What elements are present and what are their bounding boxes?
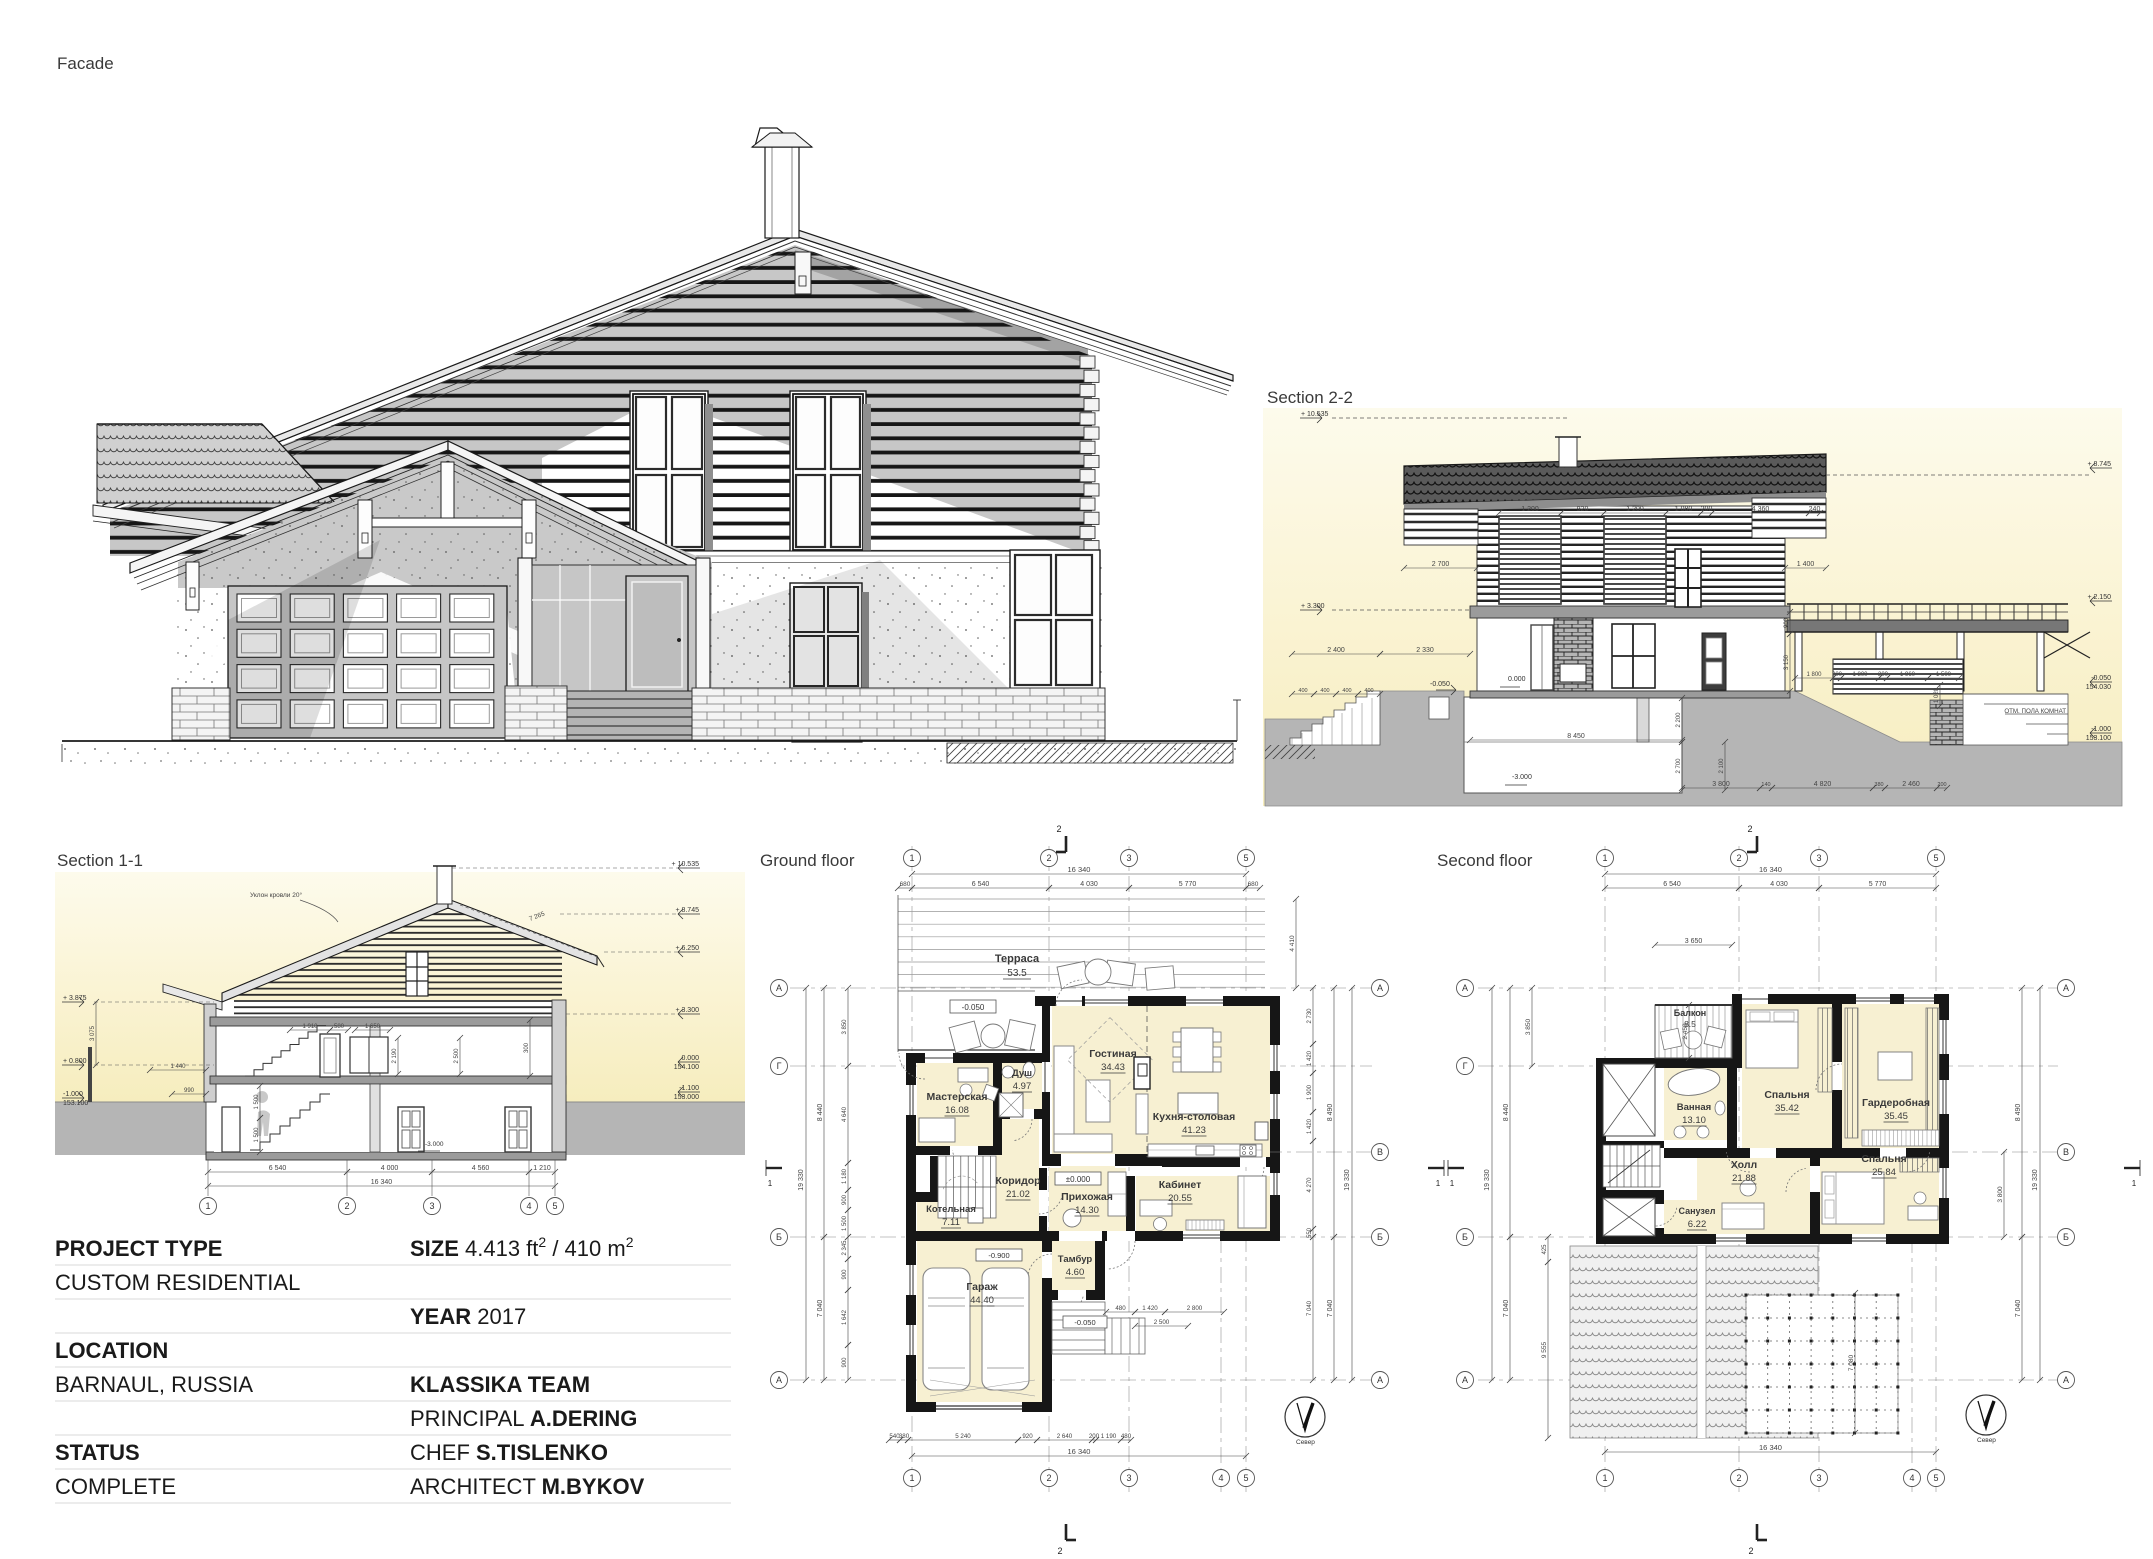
svg-text:Section 2-2: Section 2-2: [1267, 388, 1353, 407]
svg-text:1 440: 1 440: [170, 1064, 186, 1070]
svg-text:19 330: 19 330: [1344, 1169, 1351, 1191]
svg-text:STATUS: STATUS: [55, 1440, 140, 1465]
svg-text:1 190: 1 190: [1101, 1433, 1117, 1440]
svg-text:2: 2: [1736, 1473, 1741, 1483]
svg-text:А: А: [1377, 983, 1383, 993]
svg-text:200: 200: [1937, 782, 1946, 788]
svg-text:425: 425: [1542, 1244, 1548, 1255]
svg-text:480: 480: [1115, 1305, 1126, 1312]
svg-text:1 500: 1 500: [254, 1094, 260, 1110]
svg-text:4.60: 4.60: [1066, 1267, 1085, 1278]
svg-text:2 500: 2 500: [1154, 1319, 1170, 1326]
svg-text:900: 900: [842, 1194, 848, 1205]
svg-text:7.11: 7.11: [942, 1217, 960, 1228]
svg-text:-0.050: -0.050: [2091, 675, 2111, 682]
svg-text:CUSTOM RESIDENTIAL: CUSTOM RESIDENTIAL: [55, 1270, 300, 1295]
svg-text:Терраса: Терраса: [995, 953, 1040, 965]
svg-text:16 340: 16 340: [1068, 865, 1091, 874]
svg-text:3 650: 3 650: [1685, 938, 1703, 945]
svg-text:+ 10.535: + 10.535: [1301, 411, 1329, 418]
svg-text:Спальня: Спальня: [1861, 1153, 1906, 1165]
svg-text:580: 580: [334, 1024, 345, 1030]
svg-text:5 770: 5 770: [1869, 881, 1887, 888]
svg-text:А: А: [776, 1375, 782, 1385]
svg-text:3 150: 3 150: [1784, 654, 1790, 670]
svg-text:Уклон кровли 20°: Уклон кровли 20°: [250, 891, 302, 899]
svg-text:8 490: 8 490: [2015, 1104, 2022, 1122]
svg-text:4 820: 4 820: [1814, 781, 1832, 788]
svg-text:1: 1: [2132, 1179, 2137, 1188]
svg-text:Кухня-столовая: Кухня-столовая: [1153, 1111, 1235, 1123]
svg-text:25.84: 25.84: [1872, 1167, 1896, 1178]
svg-text:1 500: 1 500: [254, 1127, 260, 1143]
svg-text:34.43: 34.43: [1101, 1062, 1125, 1073]
svg-text:153.100: 153.100: [2086, 735, 2111, 742]
svg-text:1 500: 1 500: [1936, 672, 1952, 678]
svg-text:В: В: [1377, 1147, 1383, 1157]
svg-text:920: 920: [1577, 506, 1589, 513]
svg-text:2 345: 2 345: [842, 1240, 848, 1256]
svg-text:1: 1: [909, 853, 914, 863]
svg-text:8 440: 8 440: [1503, 1104, 1510, 1122]
svg-text:CHEF S.TISLENKO: CHEF S.TISLENKO: [410, 1440, 608, 1465]
svg-text:Б: Б: [1462, 1232, 1468, 1242]
svg-text:+ 6.250: + 6.250: [675, 945, 699, 952]
svg-text:Спальня: Спальня: [1764, 1089, 1809, 1101]
svg-text:2: 2: [1747, 824, 1752, 834]
svg-text:1 180: 1 180: [842, 1168, 848, 1184]
svg-text:7 040: 7 040: [1503, 1300, 1510, 1318]
svg-text:5: 5: [1243, 1473, 1248, 1483]
svg-text:2 700: 2 700: [1432, 561, 1450, 568]
svg-text:8 450: 8 450: [1567, 733, 1585, 740]
svg-text:Гараж: Гараж: [966, 1281, 998, 1293]
svg-text:3: 3: [1126, 1473, 1131, 1483]
svg-text:5: 5: [1243, 853, 1248, 863]
svg-text:200: 200: [1701, 506, 1713, 513]
svg-text:+ 2.150: + 2.150: [2087, 594, 2111, 601]
svg-text:19 330: 19 330: [2032, 1169, 2039, 1191]
svg-text:1: 1: [909, 1473, 914, 1483]
svg-text:Facade: Facade: [57, 54, 114, 73]
svg-text:А: А: [776, 983, 782, 993]
svg-text:4 410: 4 410: [1289, 935, 1296, 952]
svg-text:900: 900: [842, 1269, 848, 1280]
svg-text:900: 900: [1784, 617, 1790, 628]
svg-text:8 440: 8 440: [817, 1104, 824, 1122]
svg-text:В: В: [2063, 1147, 2069, 1157]
svg-text:1 960: 1 960: [1900, 672, 1916, 678]
svg-text:920: 920: [1022, 1433, 1033, 1440]
svg-text:1 900: 1 900: [1307, 1084, 1313, 1100]
svg-text:2: 2: [1046, 1473, 1051, 1483]
svg-text:200: 200: [1878, 672, 1889, 678]
svg-text:1: 1: [1450, 1179, 1455, 1188]
svg-text:21.88: 21.88: [1732, 1173, 1756, 1184]
svg-text:А: А: [2063, 1375, 2069, 1385]
svg-text:3: 3: [1816, 1473, 1821, 1483]
svg-text:2 500: 2 500: [454, 1048, 460, 1064]
svg-text:-0.050: -0.050: [1074, 1318, 1095, 1327]
svg-text:19 330: 19 330: [798, 1169, 805, 1191]
svg-text:3 850: 3 850: [842, 1019, 848, 1035]
svg-text:Санузел: Санузел: [1678, 1206, 1715, 1216]
svg-text:1 080: 1 080: [1675, 506, 1693, 513]
svg-text:2: 2: [1056, 824, 1061, 834]
svg-text:1 400: 1 400: [1797, 561, 1815, 568]
svg-text:1: 1: [1602, 1473, 1607, 1483]
svg-text:Б: Б: [776, 1232, 782, 1242]
svg-text:1: 1: [1602, 853, 1607, 863]
svg-text:2: 2: [1057, 1546, 1062, 1556]
svg-text:1 200: 1 200: [1626, 506, 1644, 513]
svg-text:1 420: 1 420: [1142, 1305, 1158, 1312]
svg-text:400: 400: [1320, 688, 1329, 694]
svg-text:7 040: 7 040: [817, 1300, 824, 1318]
svg-text:1 020: 1 020: [1934, 687, 1940, 703]
svg-text:Ground floor: Ground floor: [760, 851, 855, 870]
svg-text:6 540: 6 540: [1663, 881, 1681, 888]
svg-text:16 340: 16 340: [1068, 1447, 1091, 1456]
svg-text:Кабинет: Кабинет: [1159, 1179, 1202, 1191]
svg-text:20.55: 20.55: [1168, 1193, 1192, 1204]
svg-text:990: 990: [184, 1088, 195, 1094]
svg-text:1: 1: [1436, 1179, 1441, 1188]
svg-text:6 540: 6 540: [972, 881, 990, 888]
svg-text:3 800: 3 800: [1712, 781, 1730, 788]
svg-text:1 650: 1 650: [365, 1024, 381, 1030]
svg-text:-1.000: -1.000: [63, 1091, 83, 1098]
svg-text:480: 480: [1121, 1433, 1132, 1440]
svg-text:Коридор: Коридор: [995, 1175, 1040, 1187]
svg-text:Г: Г: [1463, 1061, 1468, 1071]
svg-text:19 330: 19 330: [1484, 1169, 1491, 1191]
svg-text:А: А: [1462, 1375, 1468, 1385]
svg-text:1 210: 1 210: [533, 1165, 551, 1172]
svg-text:+ 8.745: + 8.745: [2087, 461, 2111, 468]
svg-text:400: 400: [1342, 688, 1351, 694]
svg-text:PRINCIPAL A.DERING: PRINCIPAL A.DERING: [410, 1406, 637, 1431]
svg-text:1 200: 1 200: [1521, 506, 1539, 513]
svg-text:2: 2: [1046, 853, 1051, 863]
svg-text:Север: Север: [1296, 1439, 1315, 1446]
svg-text:1 910: 1 910: [302, 1024, 318, 1030]
svg-text:2: 2: [1736, 853, 1741, 863]
svg-text:+ 3.300: + 3.300: [1301, 603, 1325, 610]
svg-text:ОТМ. ПОЛА КОМНАТ: ОТМ. ПОЛА КОМНАТ: [2004, 708, 2066, 715]
svg-text:41.23: 41.23: [1182, 1125, 1206, 1136]
svg-text:4.97: 4.97: [1013, 1081, 1032, 1092]
svg-text:5: 5: [1933, 1473, 1938, 1483]
svg-text:+ 8.745: + 8.745: [675, 907, 699, 914]
svg-text:BARNAUL, RUSSIA: BARNAUL, RUSSIA: [55, 1372, 253, 1397]
svg-text:2 700: 2 700: [1676, 758, 1682, 774]
svg-text:SIZE 4.413 ft2 / 410 m2: SIZE 4.413 ft2 / 410 m2: [410, 1234, 634, 1261]
svg-text:200: 200: [1089, 1433, 1100, 1440]
svg-text:35.42: 35.42: [1775, 1103, 1799, 1114]
svg-text:4 560: 4 560: [472, 1165, 490, 1172]
svg-text:16 340: 16 340: [371, 1179, 393, 1186]
svg-text:5 240: 5 240: [955, 1433, 971, 1440]
svg-text:4 030: 4 030: [1770, 881, 1788, 888]
svg-text:16 340: 16 340: [1759, 1443, 1782, 1452]
svg-text:21.02: 21.02: [1006, 1189, 1030, 1200]
svg-text:KLASSIKA TEAM: KLASSIKA TEAM: [410, 1372, 590, 1397]
svg-text:3 075: 3 075: [90, 1025, 96, 1041]
svg-text:3: 3: [429, 1201, 434, 1211]
svg-text:COMPLETE: COMPLETE: [55, 1474, 176, 1499]
svg-text:1: 1: [205, 1201, 210, 1211]
svg-text:-0.050: -0.050: [1430, 681, 1450, 688]
svg-text:8 490: 8 490: [1327, 1104, 1334, 1122]
svg-text:5: 5: [1933, 853, 1938, 863]
svg-text:7 040: 7 040: [1327, 1300, 1334, 1318]
svg-text:5: 5: [552, 1201, 557, 1211]
svg-text:9 555: 9 555: [1541, 1341, 1548, 1358]
svg-text:240: 240: [1809, 506, 1821, 513]
svg-text:1 642: 1 642: [842, 1309, 848, 1325]
svg-text:ARCHITECT M.BYKOV: ARCHITECT M.BYKOV: [410, 1474, 645, 1499]
svg-text:YEAR 2017: YEAR 2017: [410, 1304, 526, 1329]
svg-text:2 330: 2 330: [1416, 647, 1434, 654]
svg-text:-3.000: -3.000: [425, 1141, 444, 1148]
svg-text:Тамбур: Тамбур: [1058, 1254, 1093, 1265]
svg-text:900: 900: [842, 1357, 848, 1368]
svg-text:PROJECT TYPE: PROJECT TYPE: [55, 1236, 222, 1261]
svg-text:Балкон: Балкон: [1674, 1008, 1707, 1018]
svg-text:-1.000: -1.000: [2091, 726, 2111, 733]
svg-text:Мастерская: Мастерская: [926, 1091, 987, 1103]
svg-text:А: А: [2063, 983, 2069, 993]
svg-text:16.08: 16.08: [945, 1105, 969, 1116]
svg-text:4 360: 4 360: [1752, 506, 1770, 513]
svg-text:4 000: 4 000: [381, 1165, 399, 1172]
svg-text:Ванная: Ванная: [1677, 1102, 1711, 1113]
svg-text:400: 400: [1364, 688, 1373, 694]
svg-text:35.45: 35.45: [1884, 1111, 1908, 1122]
svg-text:±0.000: ±0.000: [1066, 1175, 1091, 1184]
svg-text:16 340: 16 340: [1759, 865, 1782, 874]
svg-text:1 420: 1 420: [1307, 1050, 1313, 1066]
svg-text:0.000: 0.000: [681, 1055, 699, 1062]
svg-text:Гардеробная: Гардеробная: [1862, 1097, 1930, 1109]
svg-text:2 640: 2 640: [1057, 1433, 1073, 1440]
svg-text:Котельная: Котельная: [926, 1204, 976, 1215]
svg-text:4 270: 4 270: [1307, 1177, 1313, 1193]
svg-text:1 420: 1 420: [1307, 1118, 1313, 1134]
svg-text:2: 2: [1748, 1546, 1753, 1556]
svg-text:Б: Б: [2063, 1232, 2069, 1242]
svg-text:200: 200: [1832, 672, 1843, 678]
svg-text:1 500: 1 500: [842, 1215, 848, 1231]
svg-text:4 030: 4 030: [1080, 881, 1098, 888]
svg-text:140: 140: [1761, 782, 1770, 788]
svg-text:7 080: 7 080: [1848, 1354, 1855, 1371]
svg-text:-0.900: -0.900: [988, 1251, 1009, 1260]
svg-text:3 800: 3 800: [1997, 1186, 2004, 1203]
svg-text:2 190: 2 190: [392, 1048, 398, 1064]
svg-text:+ 10.535: + 10.535: [672, 861, 700, 868]
svg-text:-1.100: -1.100: [679, 1085, 699, 1092]
svg-text:680: 680: [1248, 881, 1259, 888]
svg-text:6.22: 6.22: [1688, 1219, 1707, 1230]
svg-text:Холл: Холл: [1731, 1159, 1757, 1171]
svg-text:400: 400: [1298, 688, 1307, 694]
svg-text:LOCATION: LOCATION: [55, 1338, 168, 1363]
svg-text:1: 1: [768, 1179, 773, 1188]
svg-text:Душ: Душ: [1012, 1068, 1032, 1079]
svg-text:6 540: 6 540: [269, 1165, 287, 1172]
svg-text:+ 0.800: + 0.800: [63, 1058, 87, 1065]
svg-text:Г: Г: [777, 1061, 782, 1071]
svg-text:2 400: 2 400: [1327, 647, 1345, 654]
svg-text:13.10: 13.10: [1682, 1115, 1706, 1126]
svg-text:А: А: [1462, 983, 1468, 993]
svg-text:153.000: 153.000: [674, 1094, 699, 1101]
svg-text:550: 550: [1307, 1227, 1313, 1238]
svg-text:7 040: 7 040: [1307, 1300, 1313, 1316]
svg-text:+ 3.300: + 3.300: [675, 1007, 699, 1014]
svg-text:4: 4: [1909, 1473, 1914, 1483]
svg-text:1 800: 1 800: [1852, 672, 1868, 678]
svg-text:2 460: 2 460: [1902, 781, 1920, 788]
svg-text:44.40: 44.40: [970, 1295, 994, 1306]
svg-text:680: 680: [900, 881, 911, 888]
svg-text:4: 4: [1218, 1473, 1223, 1483]
svg-text:Б: Б: [1377, 1232, 1383, 1242]
svg-text:2 450: 2 450: [1682, 1023, 1689, 1040]
svg-text:380: 380: [1874, 782, 1883, 788]
svg-text:4 640: 4 640: [842, 1106, 848, 1122]
svg-text:+ 3.875: + 3.875: [63, 995, 87, 1002]
svg-text:0.000: 0.000: [1508, 676, 1526, 683]
svg-text:3: 3: [1816, 853, 1821, 863]
svg-text:154.100: 154.100: [674, 1064, 699, 1071]
svg-text:1 800: 1 800: [1806, 672, 1822, 678]
svg-text:53.5: 53.5: [1007, 968, 1027, 979]
svg-text:153.100: 153.100: [63, 1100, 88, 1107]
svg-text:Second floor: Second floor: [1437, 851, 1533, 870]
svg-text:300: 300: [524, 1042, 530, 1053]
svg-text:2 800: 2 800: [1187, 1305, 1203, 1312]
svg-text:5 770: 5 770: [1179, 881, 1197, 888]
svg-text:Север: Север: [1977, 1437, 1996, 1444]
svg-text:3: 3: [1126, 853, 1131, 863]
svg-text:4: 4: [526, 1201, 531, 1211]
svg-text:14.30: 14.30: [1075, 1205, 1099, 1216]
svg-text:2: 2: [344, 1201, 349, 1211]
svg-text:-3.000: -3.000: [1512, 774, 1532, 781]
svg-text:7 040: 7 040: [2015, 1300, 2022, 1318]
svg-text:3 850: 3 850: [1525, 1018, 1532, 1035]
svg-text:2 100: 2 100: [1719, 758, 1725, 774]
svg-text:Прихожая: Прихожая: [1061, 1191, 1113, 1203]
svg-text:380: 380: [899, 1433, 910, 1440]
svg-text:Section 1-1: Section 1-1: [57, 851, 143, 870]
svg-text:Гостиная: Гостиная: [1089, 1048, 1136, 1060]
svg-text:154.030: 154.030: [2086, 684, 2111, 691]
svg-text:2 200: 2 200: [1676, 712, 1682, 728]
svg-text:2 730: 2 730: [1307, 1008, 1313, 1024]
svg-text:-0.050: -0.050: [962, 1003, 985, 1012]
svg-text:А: А: [1377, 1375, 1383, 1385]
